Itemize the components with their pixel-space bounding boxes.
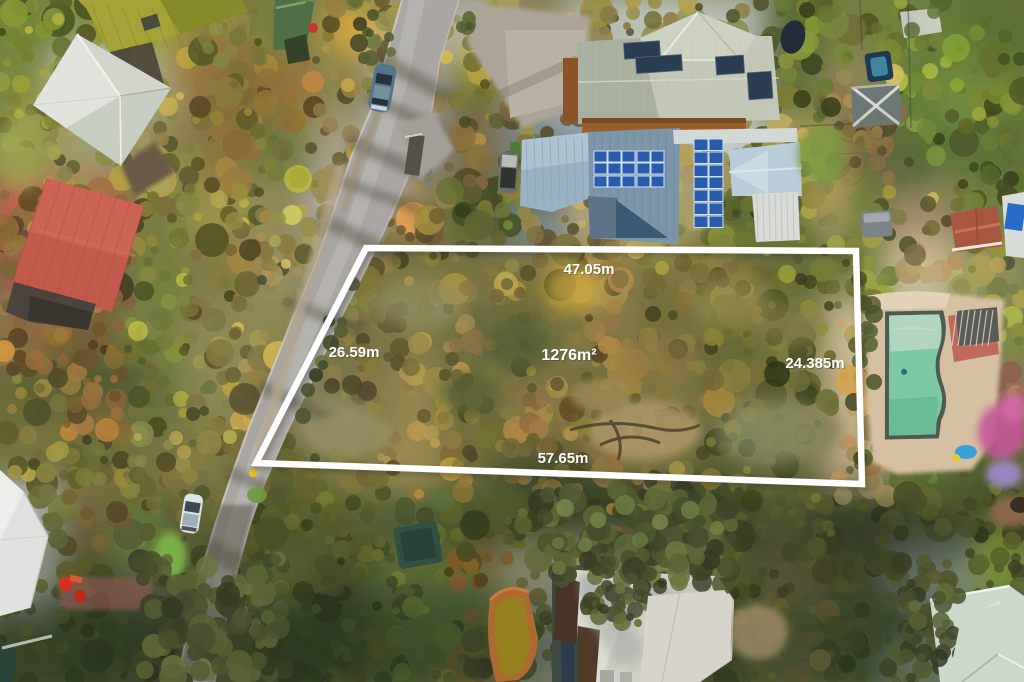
svg-text:57.65m: 57.65m [538, 450, 589, 467]
svg-text:26.59m: 26.59m [329, 344, 380, 361]
svg-text:1276m²: 1276m² [541, 347, 596, 364]
svg-text:24.385m: 24.385m [785, 355, 844, 372]
svg-text:47.05m: 47.05m [564, 261, 615, 278]
